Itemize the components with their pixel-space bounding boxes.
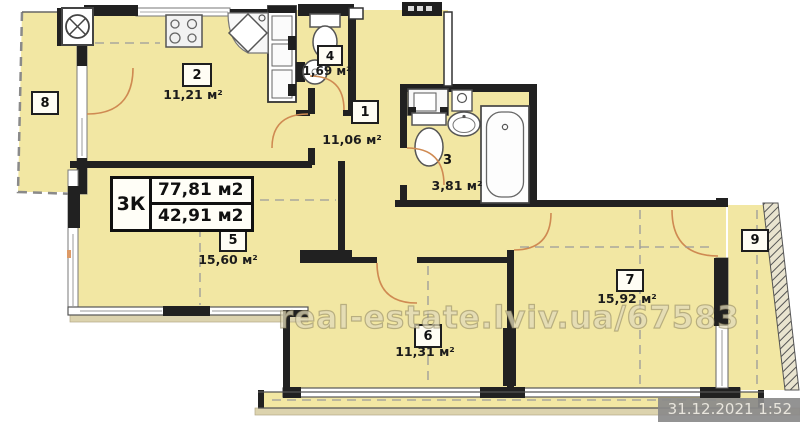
room-8-number-badge: 8 [31, 91, 59, 115]
room-7-number-badge: 7 [616, 269, 644, 292]
room-1-area-label: 11,06 м² [310, 132, 394, 147]
room-5-area-label: 15,60 м² [186, 252, 270, 267]
vestibule-wall [444, 12, 452, 86]
room-1-number-badge: 1 [351, 100, 379, 124]
boiler-icon [452, 90, 472, 111]
floorplan-screenshot: 2 4 1 3 5 6 7 8 9 11,21 м² 1,69 м² 11,06… [0, 0, 800, 422]
timestamp-overlay: 31.12.2021 1:52 [658, 398, 800, 422]
entrance-door-icon [402, 2, 442, 16]
toilet-icon-bathroom [412, 113, 446, 166]
apartment-summary-box: 3К 77,81 м2 42,91 м2 [110, 176, 254, 232]
room-4-area-label: 1,69 м² [285, 64, 369, 78]
entry-pillar [349, 8, 363, 19]
room-3-number: 3 [443, 153, 452, 168]
room-9-number-badge: 9 [741, 229, 769, 252]
room-6-area-label: 11,31 м² [383, 344, 467, 359]
room-4-number-badge: 4 [317, 45, 343, 66]
room-5-number-badge: 5 [219, 229, 247, 252]
utility-shaft-icon [268, 6, 296, 102]
room-3-area-label: 3,81 м² [415, 178, 499, 193]
apartment-type-label: 3К [113, 179, 149, 229]
watermark-text: real-estate.lviv.ua/67583 [278, 300, 740, 336]
total-area-value: 77,81 м2 [152, 179, 251, 202]
room-2-area-label: 11,21 м² [151, 87, 235, 102]
washing-machine-icon [408, 89, 448, 115]
vent-shaft-icon [62, 8, 93, 45]
stove-icon [166, 15, 202, 47]
living-area-value: 42,91 м2 [152, 202, 251, 228]
oval-sink-icon [448, 112, 480, 136]
room-2-number-badge: 2 [182, 63, 212, 87]
